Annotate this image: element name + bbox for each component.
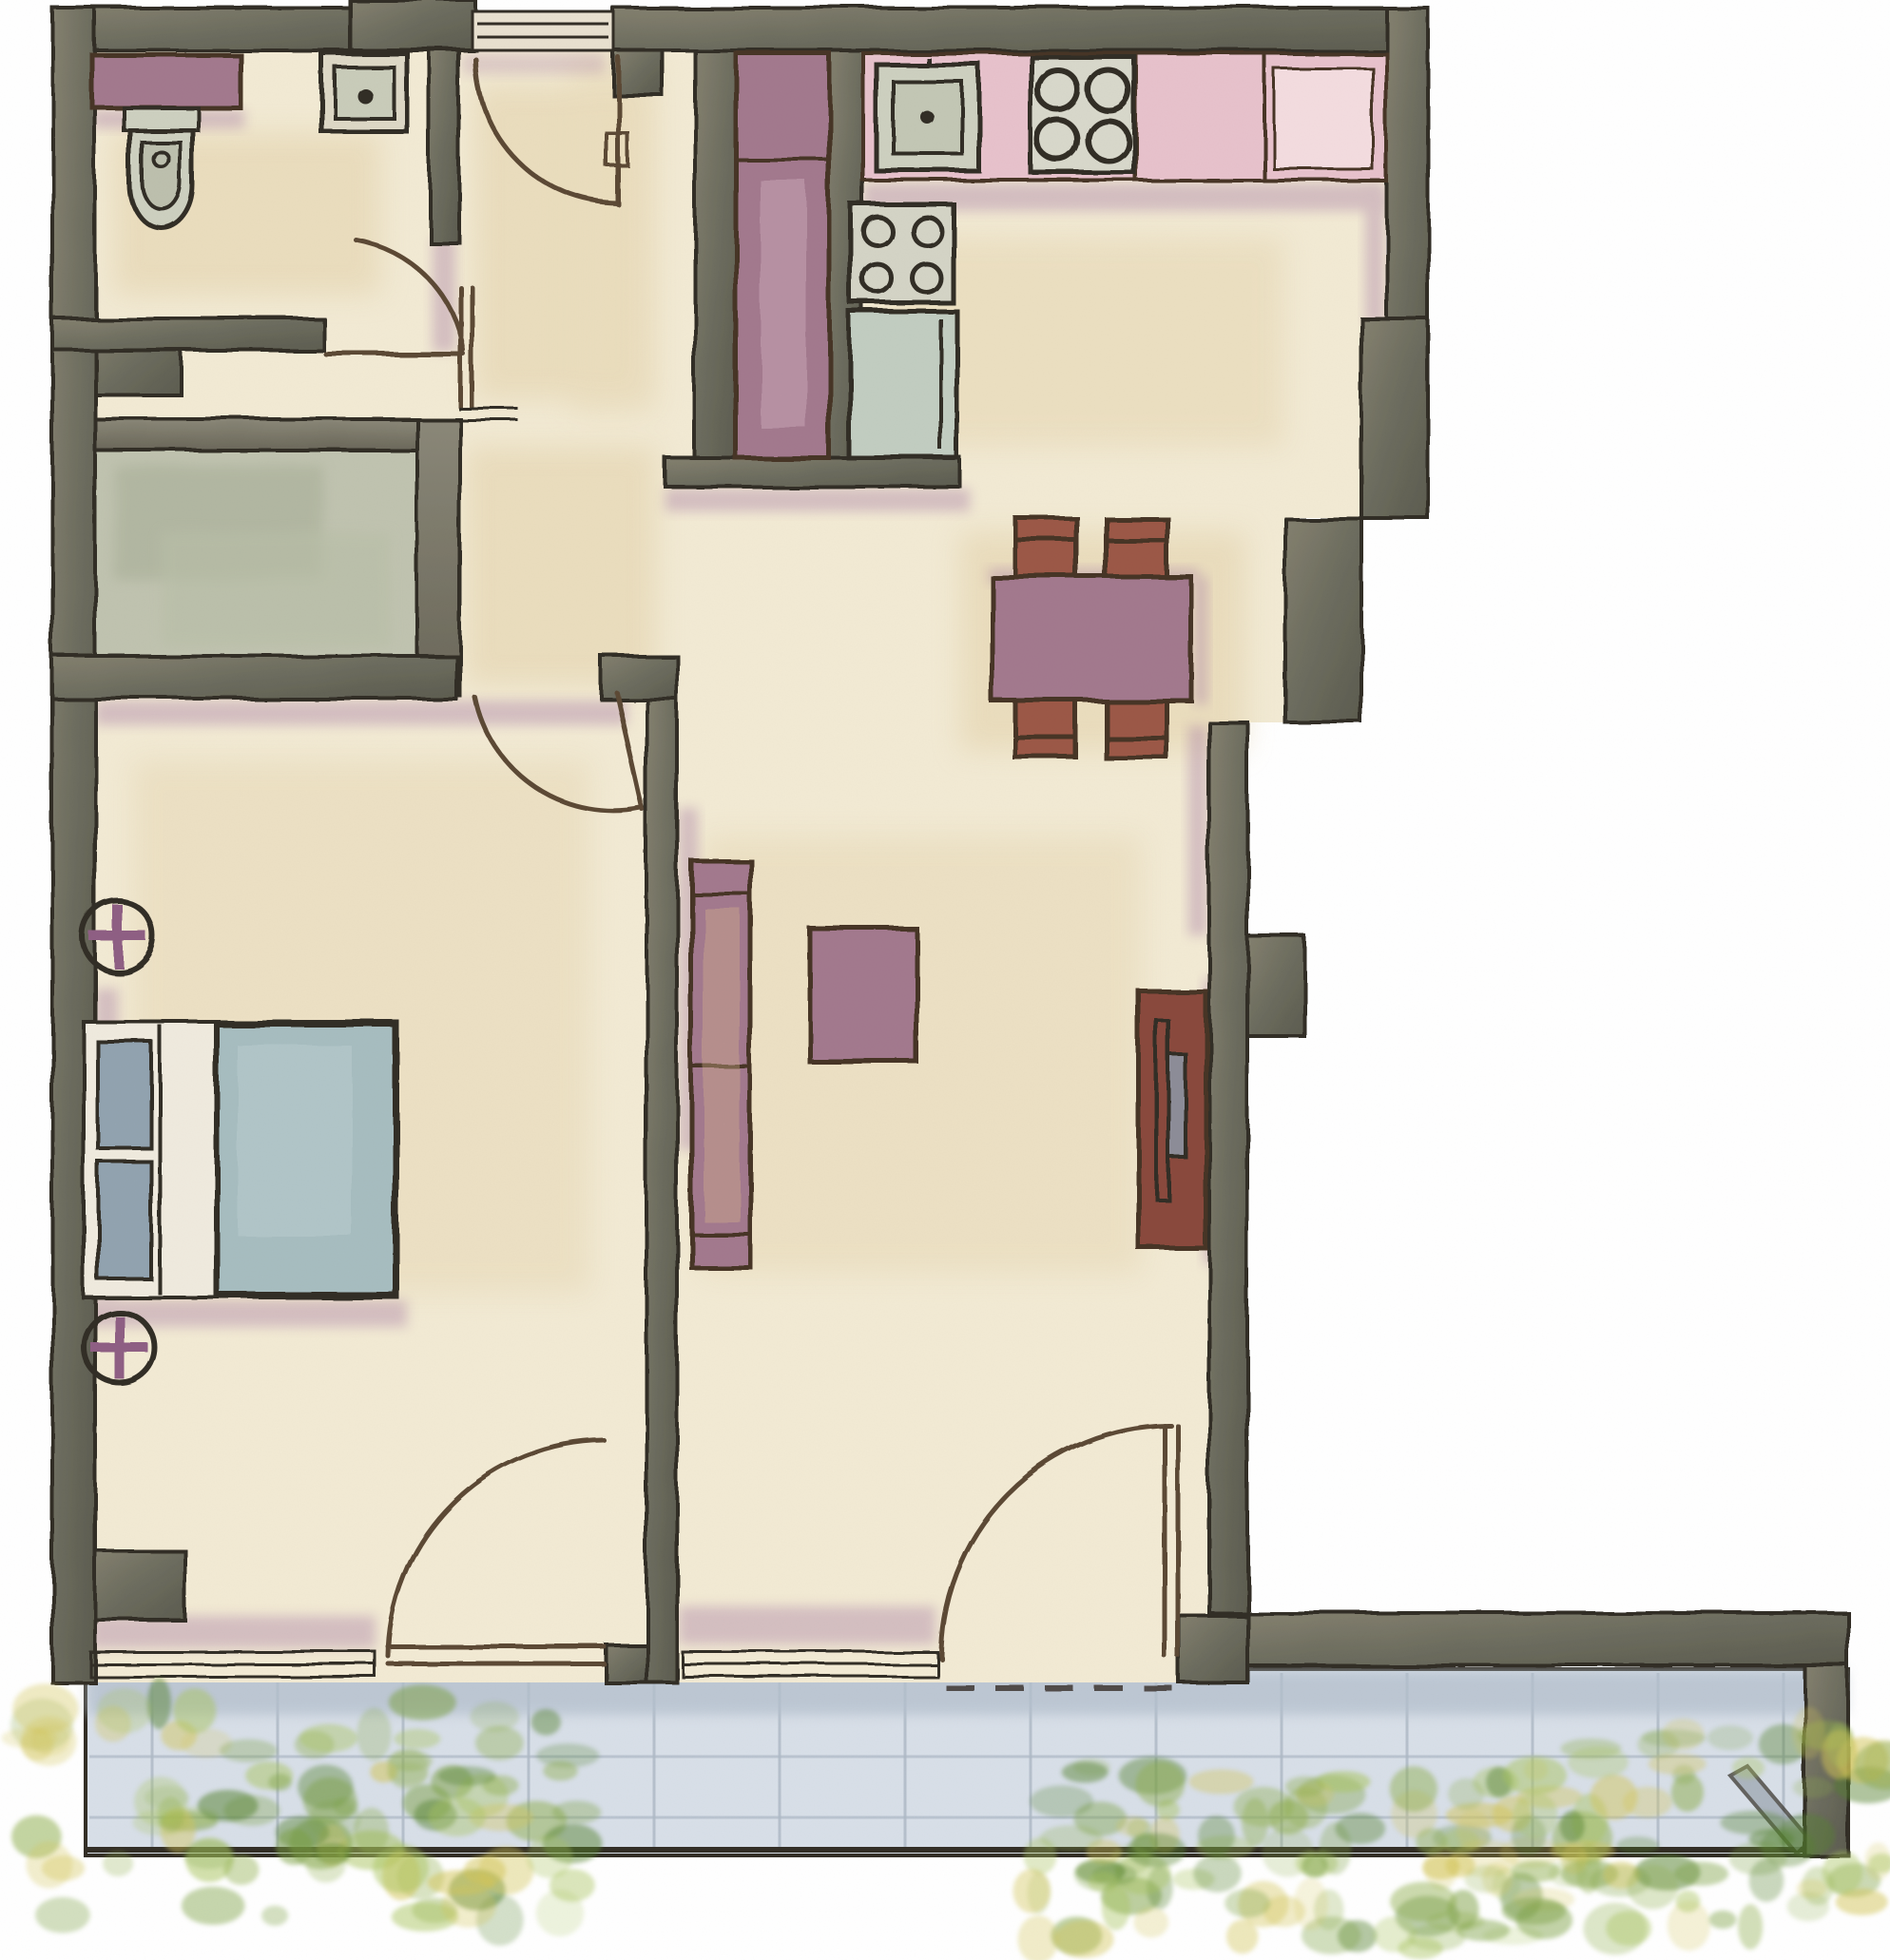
wall-lamp-icon bbox=[83, 901, 153, 971]
bathroom-vanity bbox=[92, 55, 241, 107]
sofa bbox=[691, 860, 750, 1267]
cooktop bbox=[1032, 57, 1134, 173]
bathroom-wash-basin bbox=[321, 53, 407, 131]
pillow bbox=[98, 1042, 151, 1148]
dishwasher bbox=[849, 312, 957, 458]
oven bbox=[851, 204, 954, 303]
wall-bedroom-top-left bbox=[52, 656, 456, 699]
wall-entry-kitchen-divider bbox=[695, 50, 736, 487]
wall-right-step2 bbox=[1285, 518, 1361, 722]
wall-bathroom-bottom bbox=[52, 318, 323, 350]
wall-kitchen-bottom bbox=[665, 458, 960, 487]
coffee-table bbox=[810, 929, 916, 1062]
kitchen-tall-cabinet bbox=[736, 53, 829, 458]
wall-partition-bedroom-living bbox=[646, 699, 677, 1682]
dining-table bbox=[992, 577, 1191, 701]
tv-stand bbox=[1139, 991, 1205, 1248]
dining-chair bbox=[1106, 518, 1167, 577]
wall-lamp-icon bbox=[84, 1312, 154, 1382]
wall-bedroom-top-right bbox=[601, 656, 677, 699]
entrance-threshold bbox=[472, 11, 613, 50]
wall-right-living-block bbox=[1247, 936, 1304, 1036]
wall-corner-block-terrace-door bbox=[1179, 1616, 1247, 1682]
entrance-landing-stub bbox=[350, 0, 475, 49]
wall-right-living bbox=[1209, 722, 1247, 1613]
wall-left bbox=[52, 8, 95, 1682]
pillow bbox=[98, 1162, 151, 1279]
toilet bbox=[124, 107, 198, 228]
shaft-wall-top bbox=[89, 419, 460, 451]
floor-plan-image bbox=[0, 0, 1890, 1960]
floor-plan-page bbox=[0, 0, 1890, 1960]
wall-entry-right-stub bbox=[613, 50, 663, 95]
wall-top-right-segment bbox=[613, 8, 1428, 50]
wall-terrace-top-right bbox=[1247, 1613, 1848, 1665]
dining-chair bbox=[1106, 701, 1167, 758]
dining-chair bbox=[1015, 701, 1076, 758]
dining-chair bbox=[1015, 518, 1076, 577]
shaft-wash2 bbox=[162, 532, 390, 646]
wall-bathroom-divider bbox=[430, 50, 459, 242]
wall-right-step1 bbox=[1361, 318, 1428, 518]
wall-bedroom-door-stub bbox=[606, 1644, 646, 1682]
wall-left-stub-lower bbox=[95, 1550, 184, 1620]
kitchen-sink bbox=[877, 57, 979, 171]
double-bed bbox=[84, 1022, 397, 1297]
